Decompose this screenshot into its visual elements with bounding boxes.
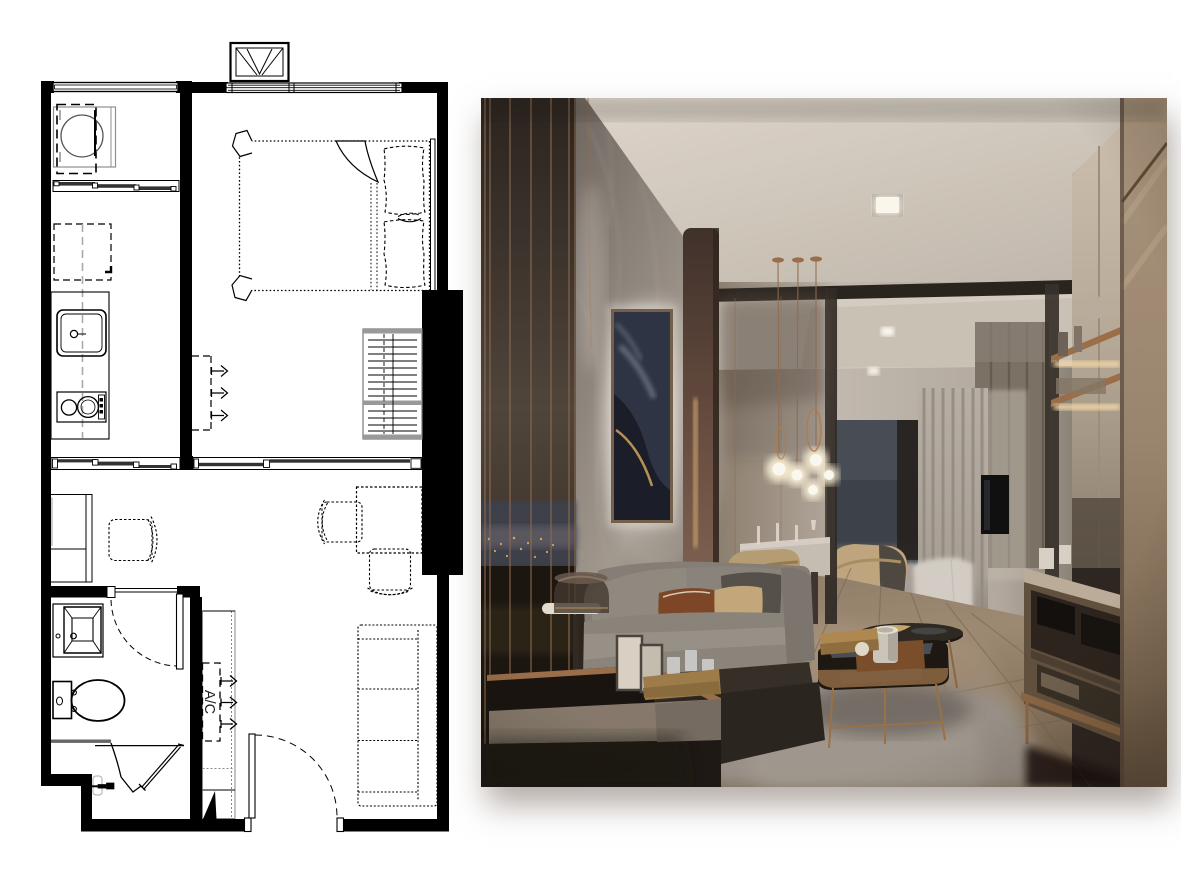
svg-text:A/C: A/C [201, 690, 217, 714]
